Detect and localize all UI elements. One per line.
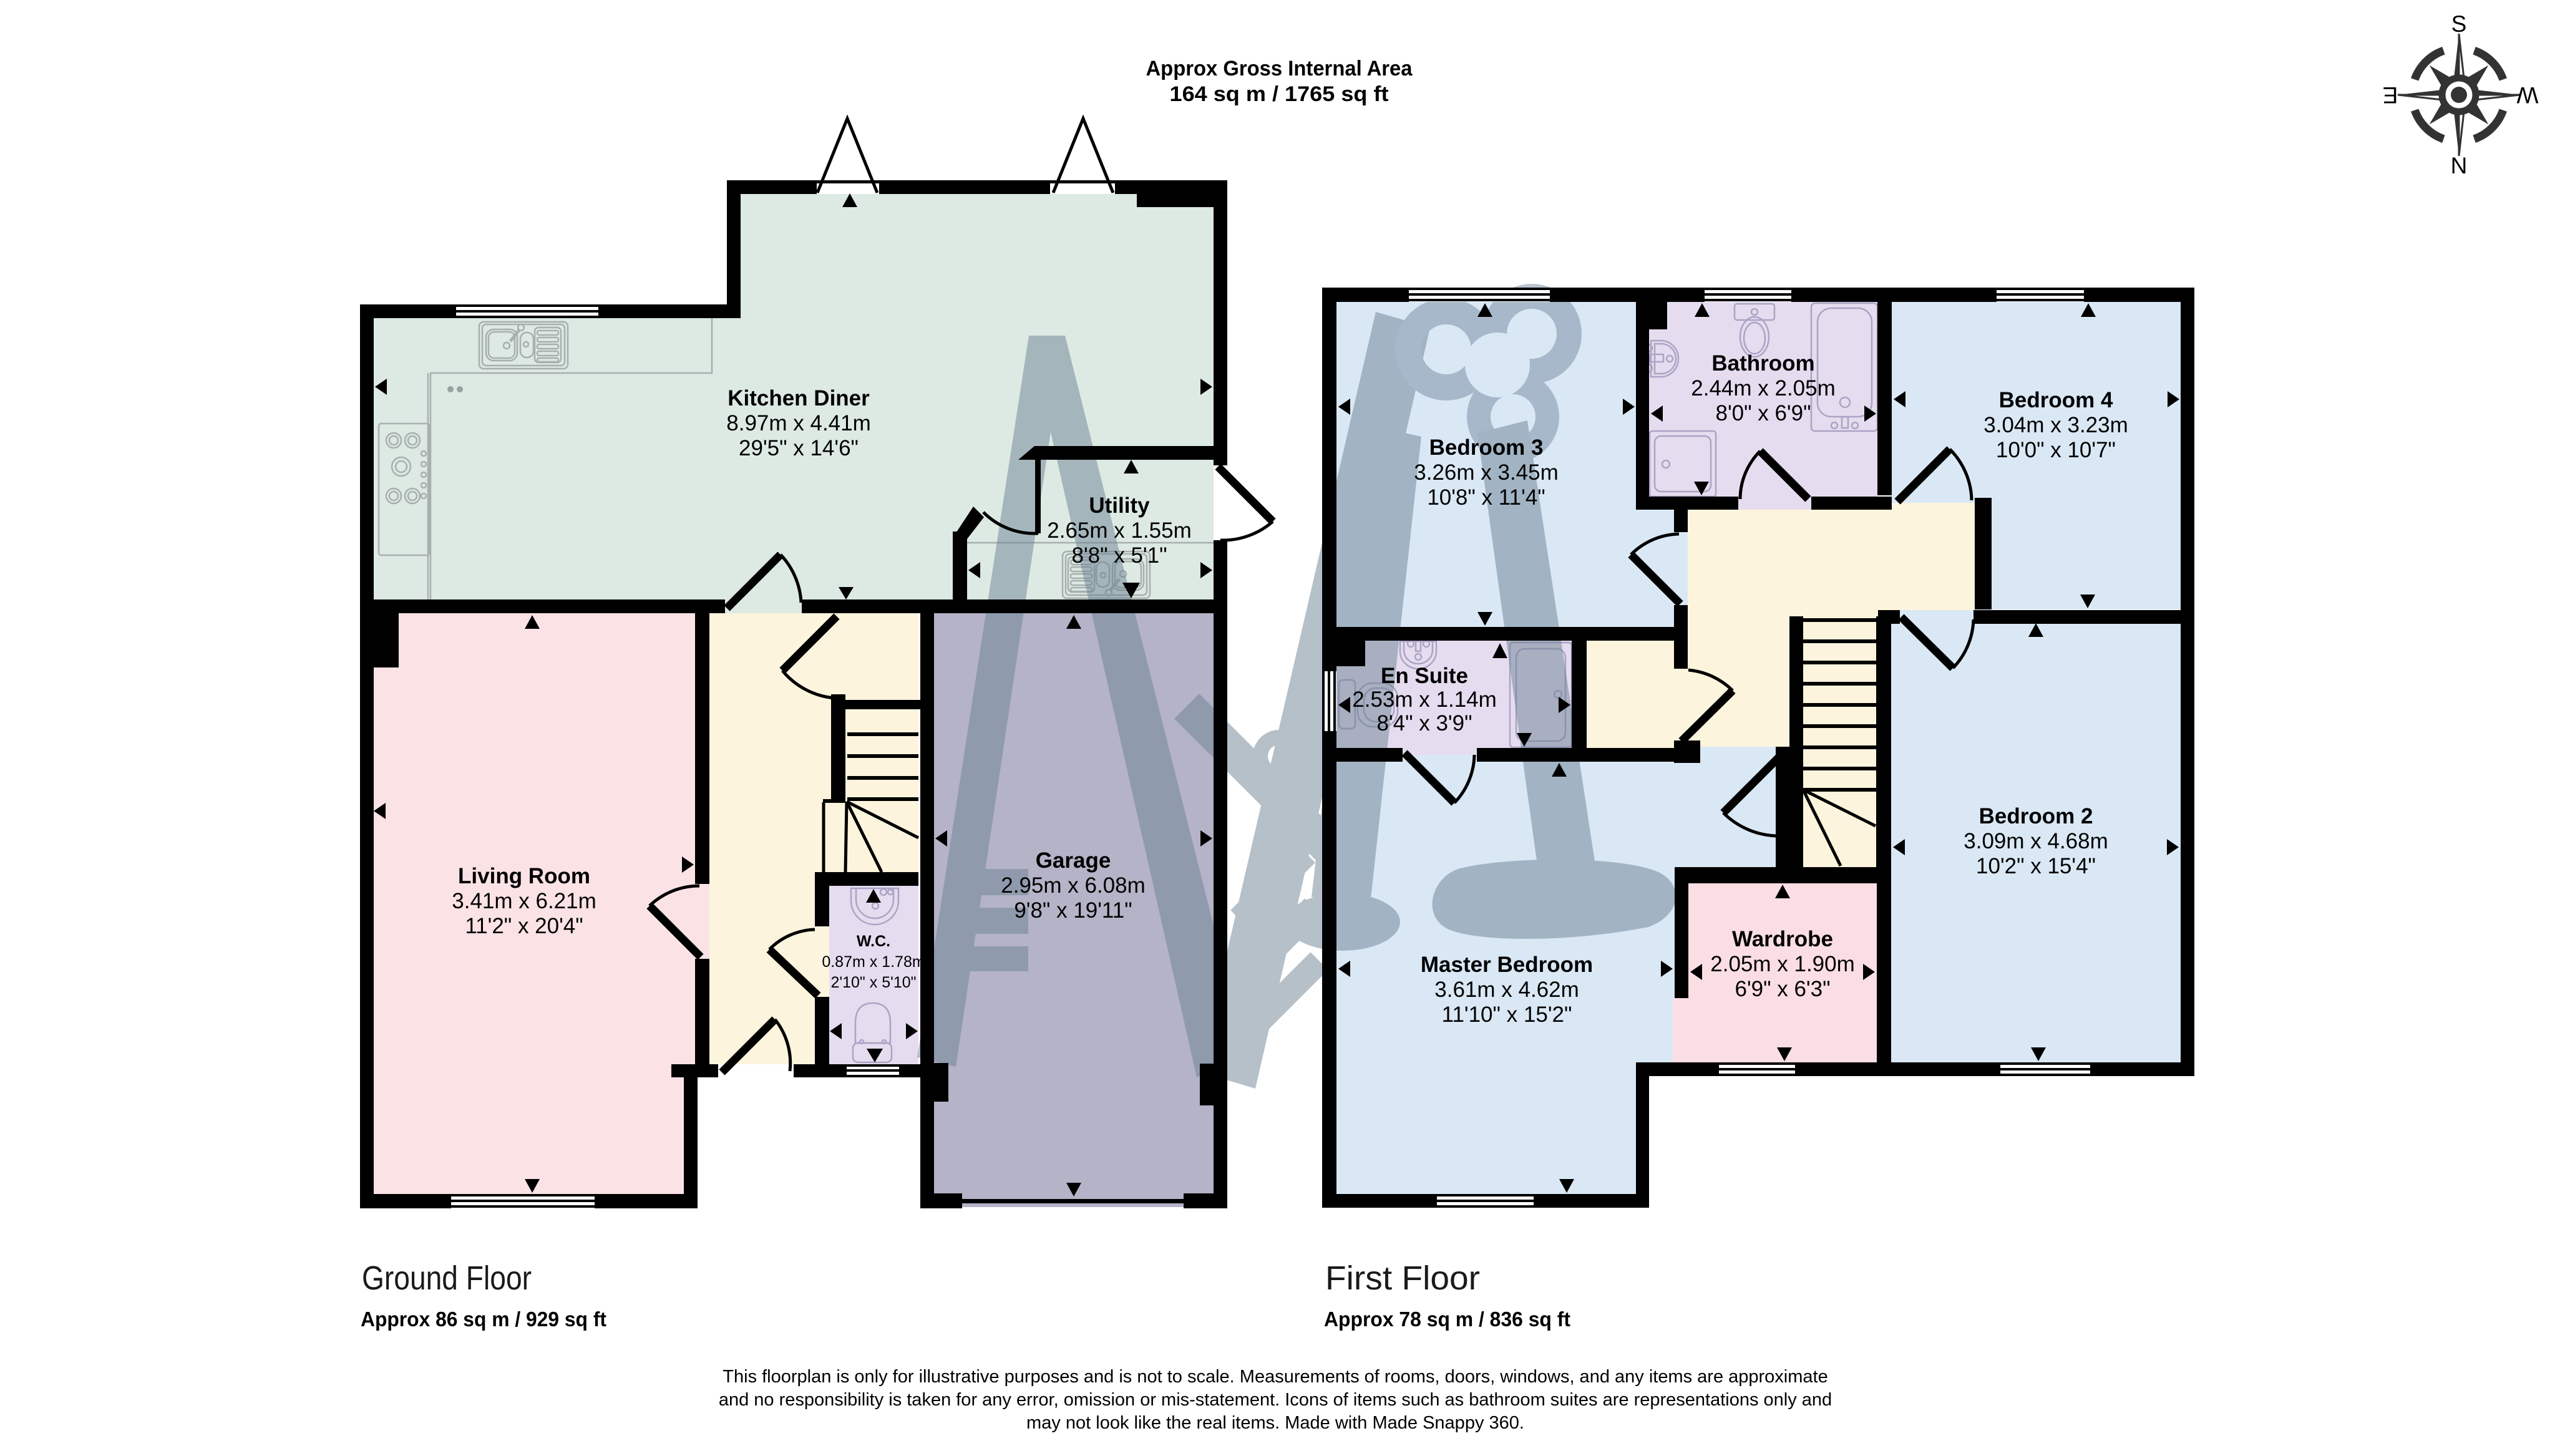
svg-text:Approx 78 sq m / 836 sq ft: Approx 78 sq m / 836 sq ft <box>1324 1308 1570 1331</box>
svg-text:Utility: Utility <box>1089 493 1150 518</box>
svg-text:29'5" x 14'6": 29'5" x 14'6" <box>739 436 859 460</box>
svg-text:Wardrobe: Wardrobe <box>1732 927 1833 951</box>
svg-text:10'2" x 15'4": 10'2" x 15'4" <box>1976 854 2096 878</box>
svg-text:8'0" x 6'9": 8'0" x 6'9" <box>1715 401 1811 425</box>
svg-text:6'9" x 6'3": 6'9" x 6'3" <box>1735 977 1830 1001</box>
svg-text:9'8" x 19'11": 9'8" x 19'11" <box>1014 898 1132 923</box>
svg-text:Bedroom 4: Bedroom 4 <box>1999 388 2113 412</box>
svg-text:Approx Gross Internal Area: Approx Gross Internal Area <box>1146 57 1413 80</box>
svg-text:E: E <box>2383 82 2398 108</box>
svg-text:3.09m x 4.68m: 3.09m x 4.68m <box>1964 829 2108 853</box>
svg-text:Bathroom: Bathroom <box>1711 351 1814 376</box>
svg-text:2.95m x 6.08m: 2.95m x 6.08m <box>1001 873 1146 898</box>
svg-text:W: W <box>2516 82 2538 108</box>
svg-text:8'8" x 5'1": 8'8" x 5'1" <box>1071 543 1167 568</box>
svg-text:8'4" x 3'9": 8'4" x 3'9" <box>1376 711 1472 735</box>
svg-text:11'2" x 20'4": 11'2" x 20'4" <box>465 914 583 938</box>
svg-text:10'0" x 10'7": 10'0" x 10'7" <box>1996 438 2116 462</box>
svg-text:11'10" x 15'2": 11'10" x 15'2" <box>1442 1002 1572 1027</box>
svg-text:Ground Floor: Ground Floor <box>362 1259 532 1297</box>
svg-text:Bedroom 3: Bedroom 3 <box>1429 435 1544 460</box>
svg-text:3.04m x 3.23m: 3.04m x 3.23m <box>1983 413 2128 437</box>
svg-text:Master Bedroom: Master Bedroom <box>1421 953 1593 977</box>
svg-text:En Suite: En Suite <box>1381 664 1468 688</box>
svg-text:2'10" x 5'10": 2'10" x 5'10" <box>830 974 916 991</box>
svg-text:Kitchen Diner: Kitchen Diner <box>728 386 870 410</box>
svg-text:3.26m x 3.45m: 3.26m x 3.45m <box>1414 460 1559 485</box>
svg-text:Living Room: Living Room <box>458 864 590 888</box>
svg-text:3.61m x 4.62m: 3.61m x 4.62m <box>1434 978 1579 1002</box>
svg-text:may not look like the real ite: may not look like the real items. Made w… <box>1026 1413 1524 1433</box>
svg-text:W.C.: W.C. <box>857 933 890 950</box>
svg-text:8.97m x 4.41m: 8.97m x 4.41m <box>726 411 871 435</box>
svg-text:N: N <box>2451 153 2468 178</box>
svg-text:This floorplan is only for ill: This floorplan is only for illustrative … <box>723 1367 1827 1387</box>
svg-text:Garage: Garage <box>1036 848 1111 873</box>
svg-text:164 sq m / 1765 sq ft: 164 sq m / 1765 sq ft <box>1170 82 1389 106</box>
svg-text:2.53m x 1.14m: 2.53m x 1.14m <box>1352 687 1497 712</box>
svg-text:10'8" x 11'4": 10'8" x 11'4" <box>1427 485 1545 510</box>
svg-text:and no responsibility is taken: and no responsibility is taken for any e… <box>719 1390 1832 1410</box>
svg-text:S: S <box>2451 11 2467 37</box>
svg-text:Bedroom 2: Bedroom 2 <box>1979 804 2093 828</box>
svg-text:3.41m x 6.21m: 3.41m x 6.21m <box>452 889 596 913</box>
svg-text:Approx 86 sq m / 929 sq ft: Approx 86 sq m / 929 sq ft <box>361 1308 606 1331</box>
svg-text:2.05m x 1.90m: 2.05m x 1.90m <box>1710 952 1855 976</box>
svg-text:2.44m x 2.05m: 2.44m x 2.05m <box>1691 376 1836 400</box>
svg-text:First Floor: First Floor <box>1325 1259 1480 1297</box>
svg-text:0.87m x 1.78m: 0.87m x 1.78m <box>822 953 925 971</box>
svg-text:2.65m x 1.55m: 2.65m x 1.55m <box>1047 518 1192 543</box>
